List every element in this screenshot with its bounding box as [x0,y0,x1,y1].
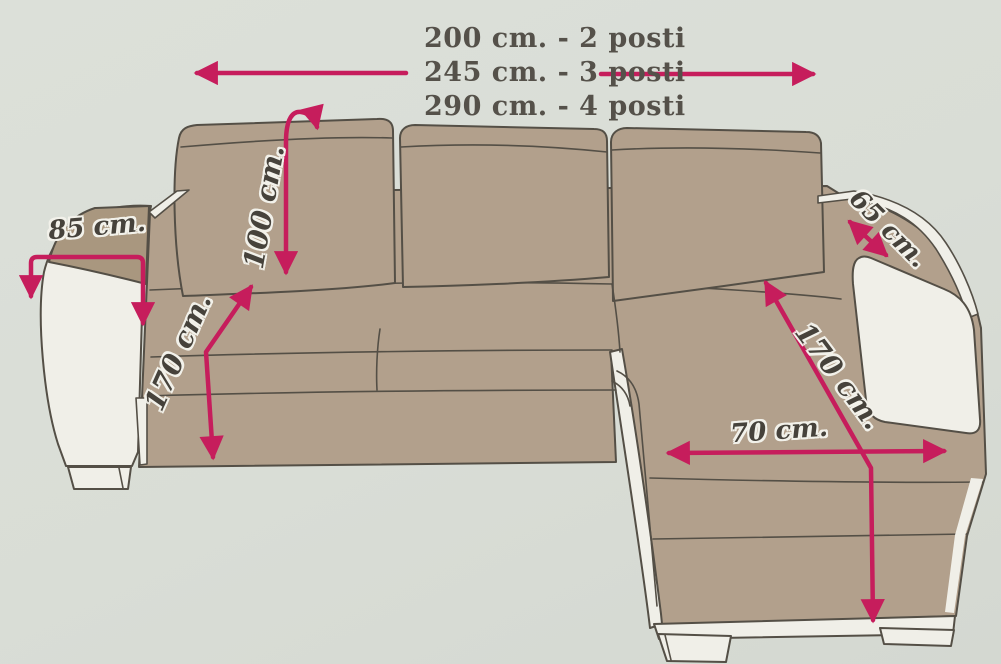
chaise-foot-left [658,634,731,662]
chaise-width-arrow [669,451,944,453]
sofa-dimensions-diagram: 200 cm. - 2 posti 245 cm. - 3 posti 290 … [0,0,1001,664]
size-option-4-posti: 290 cm. - 4 posti [424,90,686,124]
back-cushion-right [611,128,824,301]
size-option-2-posti: 200 cm. - 2 posti [424,22,686,56]
size-option-3-posti: 245 cm. - 3 posti [424,56,686,90]
left-armrest-foot [68,467,131,489]
size-options: 200 cm. - 2 posti 245 cm. - 3 posti 290 … [424,22,686,124]
back-cushion-middle [400,125,609,287]
chaise-foot-right [880,628,954,646]
